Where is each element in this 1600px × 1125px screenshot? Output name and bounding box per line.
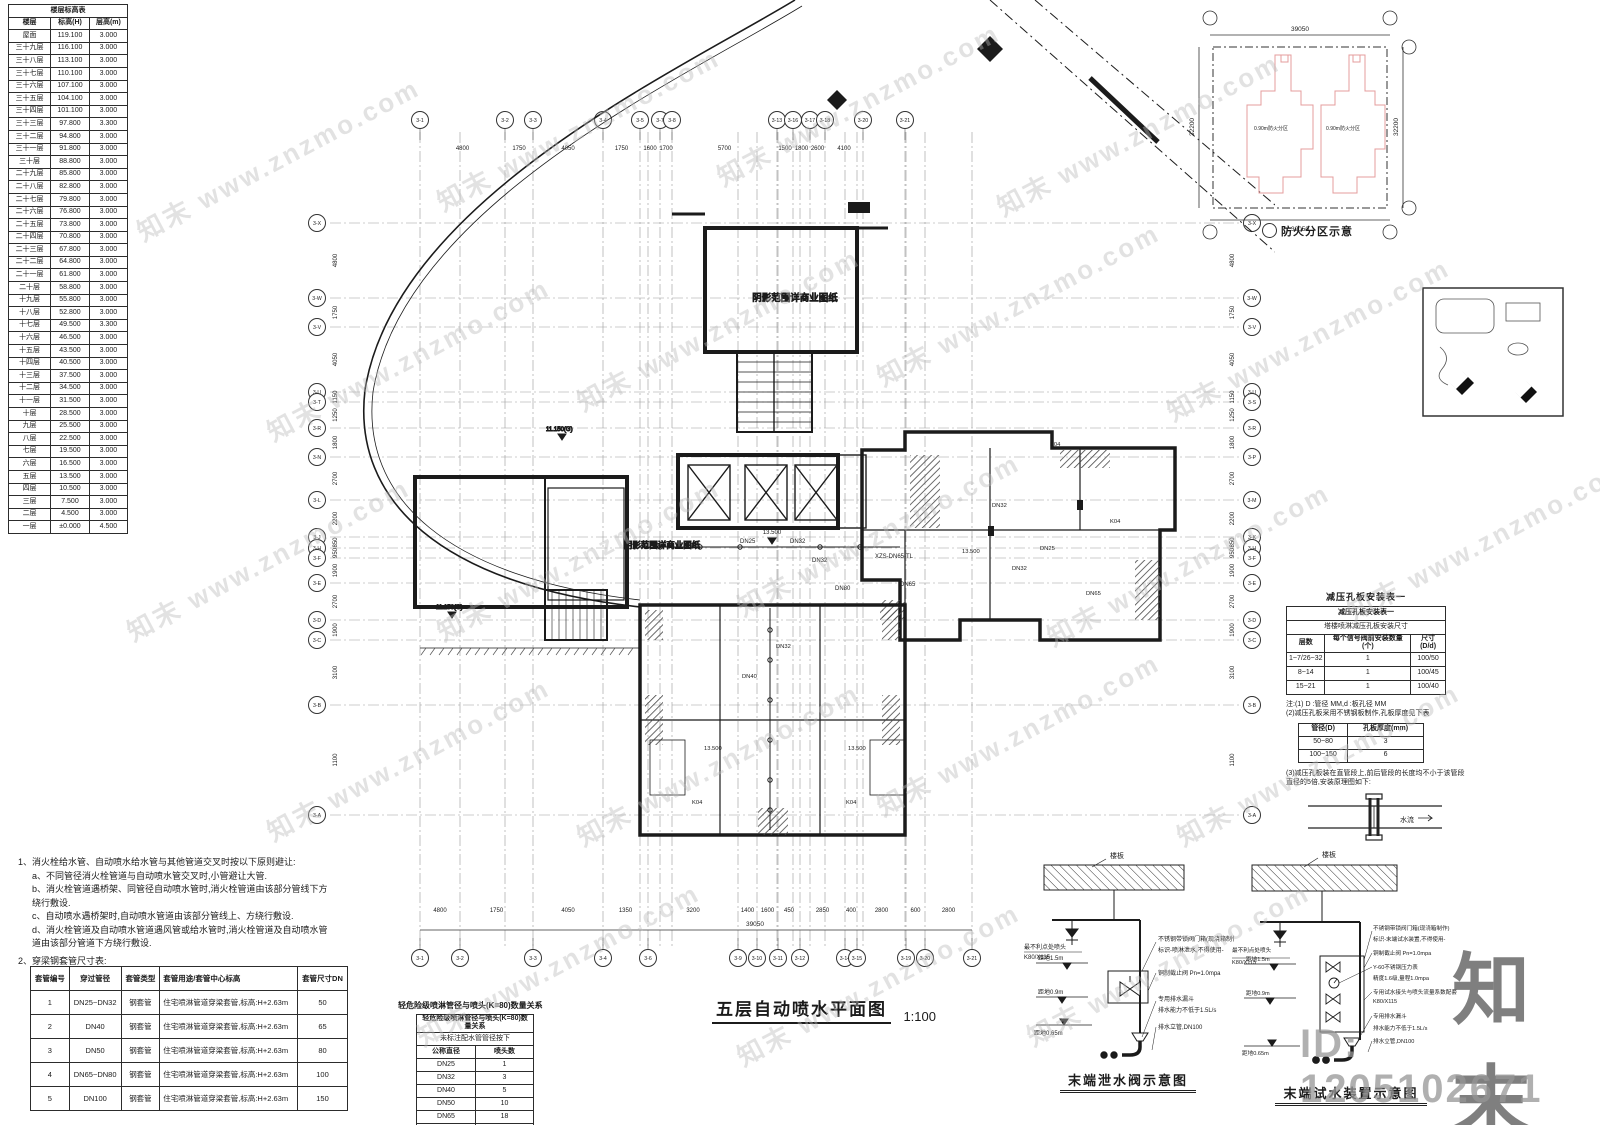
table-cell: 80 [297, 1039, 347, 1063]
dim-label: 4100 [837, 146, 851, 152]
detail-a-left-labels: 最不利点处喷头 K80/X115 距地1.5m 距地0.9m 距地0.65m [1024, 943, 1066, 1037]
table-cell: 3 [1348, 736, 1424, 749]
retaining-tick [610, 648, 615, 655]
table-row: 十九层55.8003.000 [9, 294, 128, 307]
table-row: 三十四层101.1003.000 [9, 105, 128, 118]
table-cell: 二十一层 [9, 269, 51, 282]
table-cell: 十六层 [9, 332, 51, 345]
dim-label: 1600 [643, 146, 657, 152]
table-cell: 三十二层 [9, 130, 51, 143]
table-cell: 37.500 [51, 370, 90, 383]
table-row: 4DN65~DN80钢套管住宅喷淋管道穿梁套管,标高:H+2.63m100 [31, 1063, 348, 1087]
grid-bubble-label: 3-10 [752, 956, 762, 962]
table-cell: 3.000 [89, 269, 127, 282]
upper-commercial-block: 阴影范围详商业图纸 [672, 214, 888, 352]
table-row: 套管编号穿过管径套管类型套管用途/套管中心标高套管尺寸DN [31, 967, 348, 991]
table-cell: 100/50 [1411, 652, 1446, 666]
table-cell: 3.000 [89, 307, 127, 320]
table-cell: 3.000 [89, 370, 127, 383]
grid-bubble-label: 3-8 [668, 118, 676, 124]
table-cell: 3.000 [89, 55, 127, 68]
core-stair [737, 352, 812, 432]
table-row: 二十二层64.8003.000 [9, 256, 128, 269]
table-cell: DN65~DN80 [69, 1063, 121, 1087]
grid-layer: 3-13-23-33-43-53-73-83-133-163-173-183-2… [309, 112, 1261, 967]
table-cell: 3.000 [89, 244, 127, 257]
table-cell: 八层 [9, 433, 51, 446]
table-cell: 3.000 [89, 483, 127, 496]
table-cell: DN50 [417, 1097, 476, 1110]
svg-text:最不利点处喷头: 最不利点处喷头 [1024, 943, 1066, 951]
table-cell: 钢套管 [121, 1087, 160, 1111]
retaining-tick [421, 648, 426, 655]
table-row: 50~803 [1299, 736, 1424, 749]
table-cell: 3.000 [89, 143, 127, 156]
table-cell: 六层 [9, 458, 51, 471]
cad-sheet: { "watermark":{"text":"知末 www.znzmo.com"… [0, 0, 1600, 1125]
table-cell: 100~150 [1299, 749, 1348, 762]
keyplan-bubble [1262, 223, 1277, 238]
grid-bubble-label: 3-W [1247, 296, 1257, 302]
table-cell: 3.000 [89, 345, 127, 358]
table-row: 1DN25~DN32钢套管住宅喷淋管道穿梁套管,标高:H+2.63m50 [31, 991, 348, 1015]
dim-label: 950 [1230, 547, 1236, 558]
head-count-table: 轻危险级喷淋管径与喷头(K=80)数量关系未标注配水管管径按下公称直径喷头数DN… [416, 1014, 534, 1125]
table-cell: 65 [297, 1015, 347, 1039]
table-cell: 二十三层 [9, 244, 51, 257]
table-cell: 钢套管 [121, 1063, 160, 1087]
dim-label: 1900 [333, 563, 339, 577]
grid-bubble-label: 3-N [313, 455, 322, 461]
orifice-block: 减压孔板安装表一 减压孔板安装表一塔楼喷淋减压孔板安装尺寸层数每个信号阀前安装数… [1286, 590, 1471, 849]
table-cell: 15~21 [1287, 680, 1325, 694]
table-cell: 1 [475, 1058, 533, 1071]
grid-bubble-label: 3-18 [820, 118, 830, 124]
table-row: 三十层88.8003.000 [9, 156, 128, 169]
table-cell: 3.000 [89, 408, 127, 421]
dim-label: 3100 [333, 665, 339, 679]
grid-bubble-label: 3-6 [644, 956, 652, 962]
table-row: 七层19.5003.000 [9, 445, 128, 458]
svg-text:距地0.9m: 距地0.9m [1246, 989, 1270, 997]
table-cell: 88.800 [51, 156, 90, 169]
table-cell: 轻危险级喷淋管径与喷头(K=80)数量关系 [417, 1015, 534, 1033]
drain-valve-detail: 楼板 最不利点处喷头 K80/X115 [1022, 845, 1234, 1093]
dim-label: 1750 [490, 908, 504, 914]
dim-label: 1400 [741, 908, 755, 914]
table-row: 八层22.5003.000 [9, 433, 128, 446]
retaining-tick [484, 648, 489, 655]
table-cell: 二十八层 [9, 181, 51, 194]
table-cell: 尺寸(D/d) [1411, 635, 1446, 653]
compartment-label: 0.90m防火分区 [1254, 125, 1288, 132]
table-cell: 50 [297, 991, 347, 1015]
table-cell: 标高(H) [51, 17, 90, 30]
dim-label: 950 [333, 547, 339, 558]
table-cell: 二十六层 [9, 206, 51, 219]
table-cell: 52.800 [51, 307, 90, 320]
table-cell: 套管用途/套管中心标高 [160, 967, 298, 991]
retaining-tick [502, 648, 507, 655]
dim-label: 4800 [456, 146, 470, 152]
id-watermark: ID: 1205102671 [1300, 1022, 1600, 1112]
drain-valve-diagram: 楼板 最不利点处喷头 K80/X115 [1022, 845, 1234, 1063]
retaining-tick [466, 648, 471, 655]
table-cell: 十一层 [9, 395, 51, 408]
table-cell: 三十九层 [9, 42, 51, 55]
retaining-wall-ticks [420, 648, 640, 655]
table-row: 九层25.5003.000 [9, 420, 128, 433]
svg-text:专用排水漏斗: 专用排水漏斗 [1373, 1012, 1407, 1020]
table-cell: 管径(D) [1299, 723, 1348, 736]
pipe-label-dn32: DN32 [992, 503, 1007, 509]
grid-bubble-label: 3-7 [656, 118, 664, 124]
note-heading: 1、消火栓给水管、自动喷水给水管与其他管道交叉时按以下原则避让: [18, 856, 336, 870]
svg-text:精度1.6级,量程1.0mpa: 精度1.6级,量程1.0mpa [1373, 974, 1430, 982]
svg-text:Y-60不锈钢压力表: Y-60不锈钢压力表 [1373, 963, 1418, 971]
table-row: 15~211100/40 [1287, 680, 1446, 694]
dim-label: 4050 [561, 908, 575, 914]
retaining-tick [583, 648, 588, 655]
compartment-label: 0.90m防火分区 [1326, 125, 1360, 132]
table-row: 轻危险级喷淋管径与喷头(K=80)数量关系 [417, 1015, 534, 1033]
grid-bubble-label: 3-A [1248, 813, 1257, 819]
table-row: 2DN40钢套管住宅喷淋管道穿梁套管,标高:H+2.63m65 [31, 1015, 348, 1039]
head-table-title: 轻危险级喷淋管径与喷头(K=80)数量关系 [398, 1000, 578, 1011]
table-cell: 104.100 [51, 93, 90, 106]
svg-text:距地1.5m: 距地1.5m [1038, 954, 1063, 962]
grid-bubble-label: 3-3 [529, 956, 537, 962]
table-cell: 73.800 [51, 219, 90, 232]
table-row: 5DN100钢套管住宅喷淋管道穿梁套管,标高:H+2.63m150 [31, 1087, 348, 1111]
left-podium: 阴影范围详商业图纸 [415, 477, 701, 607]
dim-label: 850 [1230, 537, 1236, 548]
table-row: 三十七层110.1003.000 [9, 67, 128, 80]
table-row: 二十六层76.8003.000 [9, 206, 128, 219]
table-cell: 3.000 [89, 80, 127, 93]
table-cell: 十九层 [9, 294, 51, 307]
table-cell: 3.000 [89, 219, 127, 232]
grid-bubble-label: 3-R [313, 426, 322, 432]
bottom-wing [640, 605, 905, 835]
retaining-tick [628, 648, 633, 655]
table-row: 二十三层67.8003.000 [9, 244, 128, 257]
table-cell: 101.100 [51, 105, 90, 118]
table-cell: 三层 [9, 496, 51, 509]
grid-bubble-label: 3-W [312, 296, 322, 302]
retaining-tick [511, 648, 516, 655]
table-cell: DN40 [417, 1084, 476, 1097]
elevation-label: 13.500 [848, 746, 866, 752]
dim-label: 2200 [333, 511, 339, 525]
table-cell: 3.000 [89, 93, 127, 106]
dim-label: 2700 [1230, 471, 1236, 485]
table-row: 六层16.5003.000 [9, 458, 128, 471]
table-cell: 套管尺寸DN [297, 967, 347, 991]
plan-title-block: 五层自动喷水平面图 1:100 [712, 995, 936, 1024]
dim-label: 2200 [1230, 511, 1236, 525]
table-row: 二十四层70.8003.000 [9, 231, 128, 244]
grid-bubble-label: 3-P [1248, 455, 1257, 461]
table-cell: DN25~DN32 [69, 991, 121, 1015]
table-row: DN6518 [417, 1110, 534, 1123]
retaining-tick [520, 648, 525, 655]
table-row: DN5010 [417, 1097, 534, 1110]
dim-label: 4800 [433, 908, 447, 914]
table-cell: 46.500 [51, 332, 90, 345]
table-cell: 3.000 [89, 420, 127, 433]
table-cell: 1 [31, 991, 70, 1015]
grid-bubble-label: 3-2 [501, 118, 509, 124]
table-cell: 3.000 [89, 294, 127, 307]
table-cell: 150 [297, 1087, 347, 1111]
svg-text:距地0.65m: 距地0.65m [1242, 1049, 1269, 1057]
table-cell: 5 [31, 1087, 70, 1111]
grid-bubble-label: 3-16 [788, 118, 798, 124]
pipe-label-dn80: DN80 [835, 586, 851, 592]
table-row: 十五层43.5003.000 [9, 345, 128, 358]
table-cell: 3.000 [89, 433, 127, 446]
table-cell: 住宅喷淋管道穿梁套管,标高:H+2.63m [160, 991, 298, 1015]
svg-text:标识-喷淋泄水,不得使用-: 标识-喷淋泄水,不得使用- [1158, 946, 1224, 954]
svg-text:不锈钢带锁阀门箱(现浇箱制作): 不锈钢带锁阀门箱(现浇箱制作) [1373, 924, 1450, 932]
table-cell: 10 [475, 1097, 533, 1110]
retaining-tick [475, 648, 480, 655]
curved-road [364, 0, 802, 607]
table-cell: 套管编号 [31, 967, 70, 991]
grid-bubble-label: 3-E [313, 581, 322, 587]
dim-label: 4050 [561, 146, 575, 152]
fire-compartment-outline [1247, 55, 1385, 193]
slab-label: 楼板 [1322, 850, 1336, 859]
room-label-k04: K04 [1050, 442, 1061, 448]
table-row: 五层13.5003.000 [9, 470, 128, 483]
grid-bubble-label: 3-S [1248, 400, 1257, 406]
table-cell: 二层 [9, 508, 51, 521]
table-cell: 3.300 [89, 319, 127, 332]
table-cell: 住宅喷淋管道穿梁套管,标高:H+2.63m [160, 1063, 298, 1087]
overall-dim-label: 39050 [746, 921, 764, 928]
table-cell: 22.500 [51, 433, 90, 446]
table-cell: 二十七层 [9, 193, 51, 206]
grid-bubble-label: 3-20 [920, 956, 930, 962]
table-cell: 3.000 [89, 181, 127, 194]
table-cell: 70.800 [51, 231, 90, 244]
table-row: 十八层52.8003.000 [9, 307, 128, 320]
table-cell: 91.800 [51, 143, 90, 156]
table-cell: 58.800 [51, 282, 90, 295]
table-row: 十一层31.5003.000 [9, 395, 128, 408]
table-cell: 住宅喷淋管道穿梁套管,标高:H+2.63m [160, 1087, 298, 1111]
dim-label: 450 [784, 908, 795, 914]
dim-label: 2700 [333, 471, 339, 485]
dim-label: 1500 [778, 146, 792, 152]
table-cell: 18 [475, 1110, 533, 1123]
table-cell: 3.000 [89, 256, 127, 269]
dim-label: 2700 [1230, 594, 1236, 608]
grid-bubble-label: 3-13 [772, 118, 782, 124]
table-cell: DN100 [69, 1087, 121, 1111]
table-cell: 116.100 [51, 42, 90, 55]
floor-elevation-table: 楼层标高表楼层标高(H)层高(m)屋面119.1003.000三十九层116.1… [8, 4, 128, 534]
sleeve-table-wrap: 套管编号穿过管径套管类型套管用途/套管中心标高套管尺寸DN1DN25~DN32钢… [30, 966, 348, 1111]
table-cell: 三十一层 [9, 143, 51, 156]
table-cell: 19.500 [51, 445, 90, 458]
svg-text:距地0.65m: 距地0.65m [1034, 1029, 1063, 1037]
table-cell: 三十四层 [9, 105, 51, 118]
table-row: 屋面119.1003.000 [9, 30, 128, 43]
dim-label: 1100 [333, 753, 339, 767]
grid-bubble-label: 3-C [1248, 638, 1257, 644]
retaining-tick [601, 648, 606, 655]
orifice-note-1: 注:(1) D :管径 MM,d :板孔径 MM [1286, 700, 1466, 709]
grid-bubble-label: 3-15 [852, 956, 862, 962]
dim-label: 3200 [686, 908, 700, 914]
dim-label: 4800 [333, 253, 339, 267]
dim-label: 1700 [659, 146, 673, 152]
retaining-tick [619, 648, 624, 655]
table-cell: 110.100 [51, 67, 90, 80]
floor-plan-drawing: 3-13-23-33-43-53-73-83-133-163-173-183-2… [290, 0, 1275, 990]
table-row: DN323 [417, 1071, 534, 1084]
table-cell: 10.500 [51, 483, 90, 496]
table-cell: 3.000 [89, 206, 127, 219]
slab-section [1044, 865, 1184, 890]
table-cell: 三十七层 [9, 67, 51, 80]
table-row: 三十六层107.1003.000 [9, 80, 128, 93]
table-row: 公称直径喷头数 [417, 1045, 534, 1058]
slab-section [1252, 865, 1397, 891]
table-row: 楼层标高表 [9, 5, 128, 18]
right-wing [862, 432, 1175, 640]
table-cell: 楼层标高表 [9, 5, 128, 18]
table-row: 减压孔板安装表一 [1287, 607, 1446, 621]
table-cell: 层数 [1287, 635, 1325, 653]
table-cell: 107.100 [51, 80, 90, 93]
table-row: 8~141100/45 [1287, 666, 1446, 680]
dim-label: 1900 [1230, 623, 1236, 637]
table-row: 十三层37.5003.000 [9, 370, 128, 383]
table-cell: 十层 [9, 408, 51, 421]
table-cell: 3.000 [89, 130, 127, 143]
table-cell: 三十五层 [9, 93, 51, 106]
table-row: 二十九层85.8003.000 [9, 168, 128, 181]
elevation-label: 13.500 [962, 549, 980, 555]
table-cell: 钢套管 [121, 1039, 160, 1063]
grid-bubble-label: 3-T [313, 400, 322, 406]
grid-bubble-label: 3-L [313, 498, 321, 504]
table-row: 四层10.5003.000 [9, 483, 128, 496]
table-row: 1~7/26~321100/50 [1287, 652, 1446, 666]
table-cell: 49.500 [51, 319, 90, 332]
table-cell: 住宅喷淋管道穿梁套管,标高:H+2.63m [160, 1039, 298, 1063]
dim-label: 5700 [718, 146, 732, 152]
pipe-label-dn65: DN65 [1086, 591, 1101, 597]
svg-text:不锈钢带锁阀门箱(现浇箱制作): 不锈钢带锁阀门箱(现浇箱制作) [1158, 935, 1234, 943]
table-row: 十六层46.5003.000 [9, 332, 128, 345]
grid-bubble-label: 3-1 [416, 956, 424, 962]
slab-label: 楼板 [1110, 851, 1124, 860]
table-cell: 楼层 [9, 17, 51, 30]
orifice-table: 减压孔板安装表一塔楼喷淋减压孔板安装尺寸层数每个信号阀前安装数量(个)尺寸(D/… [1286, 606, 1446, 695]
table-cell: DN40 [69, 1015, 121, 1039]
table-cell: 四层 [9, 483, 51, 496]
table-cell: 三十三层 [9, 118, 51, 131]
keyplan-caption-row: 防火分区示意 [1262, 222, 1353, 240]
table-cell: 5 [475, 1084, 533, 1097]
table-row: 管径(D)孔板厚度(mm) [1299, 723, 1424, 736]
note-item-b: b、消火栓管道遇桥架、同管径自动喷水管时,消火栓管道由该部分管线下方绕行敷设. [18, 883, 336, 910]
dim-label: 1600 [761, 908, 775, 914]
grid-bubble-label: 3-21 [900, 118, 910, 124]
table-cell: 64.800 [51, 256, 90, 269]
table-cell: 13.500 [51, 470, 90, 483]
table-cell: 3.000 [89, 231, 127, 244]
room-label-k04: K04 [1110, 519, 1121, 525]
table-row: 三十九层116.1003.000 [9, 42, 128, 55]
grid-bubble-label: 3-C [313, 638, 322, 644]
fire-compartment-keyplan: 39050 39050 32200 32200 0.90m防火分区 0.90m防… [1185, 5, 1417, 241]
table-row: 未标注配水管管径按下 [417, 1032, 534, 1045]
svg-text:K80/X115: K80/X115 [1373, 999, 1397, 1005]
table-row: 三十八层113.1003.000 [9, 55, 128, 68]
table-row: DN251 [417, 1058, 534, 1071]
table-cell: 113.100 [51, 55, 90, 68]
table-cell: 40.500 [51, 357, 90, 370]
table-cell: 塔楼喷淋减压孔板安装尺寸 [1287, 621, 1446, 635]
table-cell: 55.800 [51, 294, 90, 307]
grid-bubble-label: 3-1 [416, 118, 424, 124]
retaining-tick [439, 648, 444, 655]
table-row: 100~1506 [1299, 749, 1424, 762]
table-row: 三十二层94.8003.000 [9, 130, 128, 143]
elevator-shaft [688, 465, 837, 520]
dim-label: 2850 [816, 908, 830, 914]
table-cell: 3.000 [89, 105, 127, 118]
grid-bubble-label: 3-A [313, 813, 322, 819]
pipe-label-dn40: DN40 [742, 674, 757, 680]
dim-label: 400 [846, 908, 857, 914]
grid-bubble-label: 3-F [313, 556, 321, 562]
svg-text:铜制截止阀 Pn=1.0mpa: 铜制截止阀 Pn=1.0mpa [1373, 949, 1432, 957]
grid-bubble-label: 3-D [313, 618, 322, 624]
bottom-wing-labels: DN40 DN32 13.500 13.500 K04 K04 [692, 644, 866, 806]
table-cell: 3.000 [89, 508, 127, 521]
dim-label: 3100 [1230, 665, 1236, 679]
table-row: 二层4.5003.000 [9, 508, 128, 521]
elevation-label: 11.150(G) [436, 605, 463, 611]
table-cell: 十七层 [9, 319, 51, 332]
table-cell: 层高(m) [89, 17, 127, 30]
table-cell: 67.800 [51, 244, 90, 257]
table-cell: 三十层 [9, 156, 51, 169]
dim-label: 1250 [333, 408, 339, 422]
table-cell: 屋面 [9, 30, 51, 43]
table-cell: 3.000 [89, 67, 127, 80]
table-cell: 3.000 [89, 332, 127, 345]
svg-text:最不利点处喷头: 最不利点处喷头 [1232, 946, 1272, 954]
general-notes: 1、消火栓给水管、自动喷水给水管与其他管道交叉时按以下原则避让: a、不同管径消… [18, 856, 336, 968]
dim-label: 1800 [333, 435, 339, 449]
table-row: 楼层标高(H)层高(m) [9, 17, 128, 30]
table-cell: 3 [31, 1039, 70, 1063]
grid-bubble-label: 3-X [313, 221, 322, 227]
table-cell: 34.500 [51, 382, 90, 395]
retaining-tick [592, 648, 597, 655]
table-cell: 3.000 [89, 470, 127, 483]
pipe-label-dn32: DN32 [1012, 566, 1027, 572]
grid-bubble-label: 3-9 [734, 956, 742, 962]
